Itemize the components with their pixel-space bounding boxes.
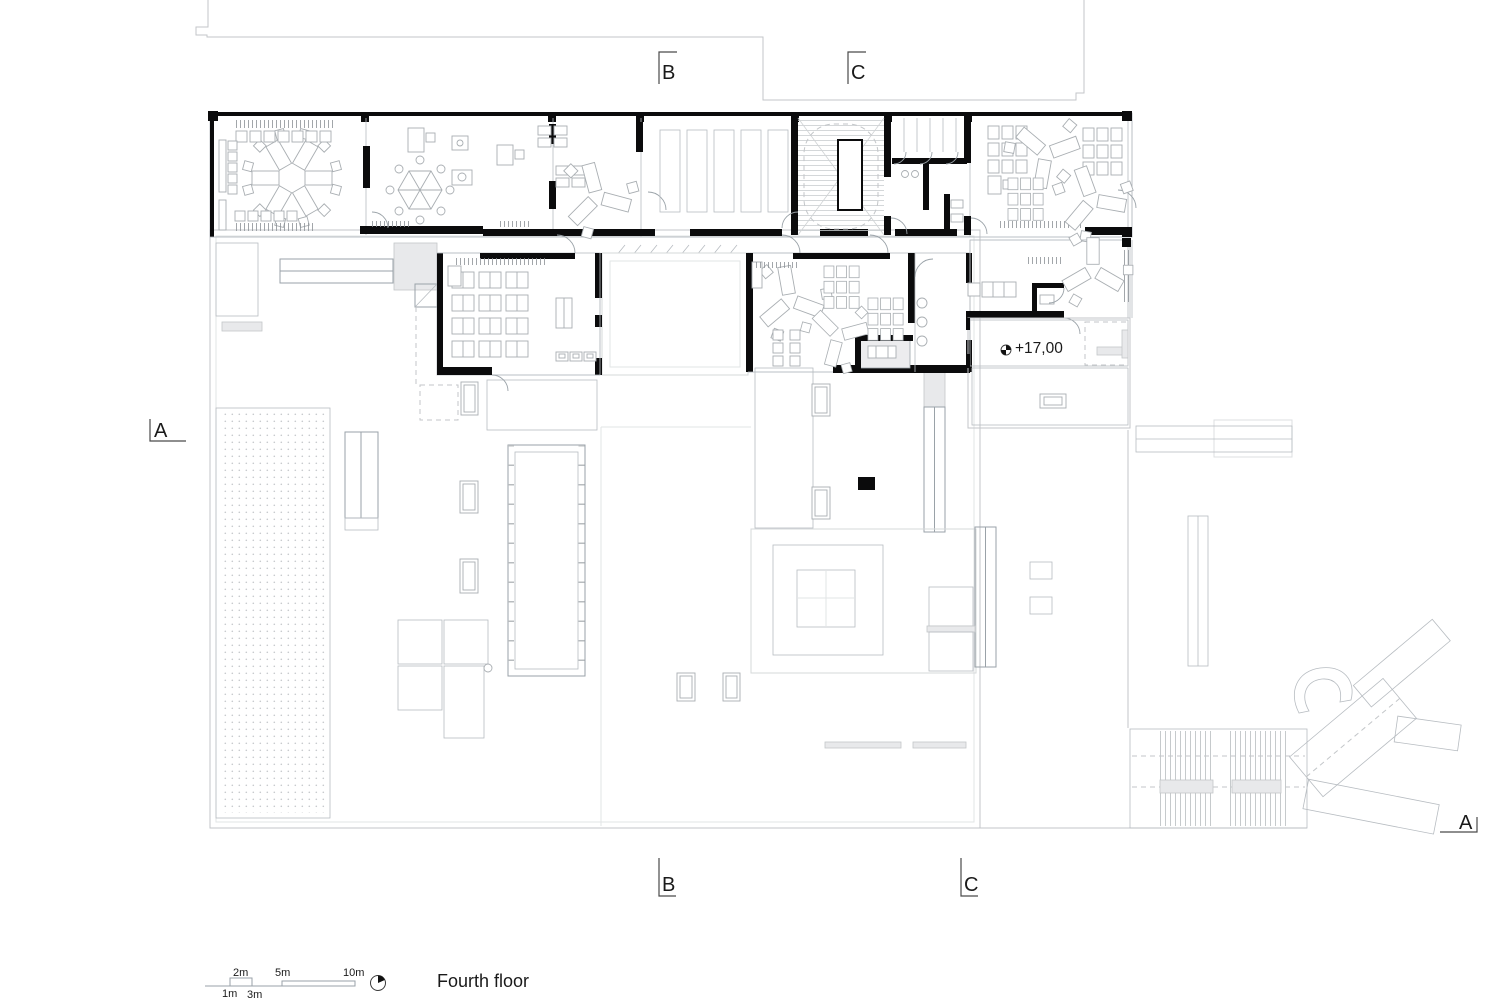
section-marker-b-top: B — [659, 52, 677, 84]
section-marker-c-bottom: C — [961, 858, 978, 896]
site-boundary — [196, 0, 1307, 828]
external-stair-east — [1136, 420, 1292, 666]
wing-wc-zone — [892, 118, 967, 230]
wing-stair-core — [798, 118, 884, 235]
roof-terrace-left — [216, 243, 597, 818]
elevation-label: +17,00 — [1015, 340, 1063, 357]
furniture-desk-grid — [868, 298, 903, 340]
room-library-stacks — [660, 130, 788, 212]
room-meeting-west — [219, 120, 341, 231]
section-marker-c-top: C — [848, 52, 866, 84]
svg-text:A: A — [1459, 812, 1473, 834]
courtyard-light-well — [602, 253, 748, 375]
block-classroom-west — [437, 235, 602, 391]
furniture-desk-grid — [1083, 128, 1122, 175]
floor-plan-sheet: +17,00 B C B C A A — [0, 0, 1498, 1000]
courtyard-stair-a — [924, 369, 945, 532]
furniture-desk-grid — [1008, 178, 1043, 220]
scale-label-3m: 3m — [247, 989, 262, 1000]
scale-bar: 1m 2m 3m 5m 10m — [205, 967, 386, 1000]
wing-north — [208, 110, 1136, 248]
north-arrow-icon — [371, 976, 386, 991]
floor-plan-drawing: +17,00 B C B C A A — [0, 0, 1498, 1000]
room-seminar-hex — [386, 128, 472, 224]
roof-terrace-plus17: +17,00 — [966, 318, 1130, 428]
walkway-arm-lower — [1303, 779, 1439, 834]
walkway-hook — [1294, 668, 1352, 713]
section-marker-a-left: A — [150, 419, 186, 442]
section-marker-a-right: A — [1440, 812, 1477, 834]
block-classroom-center — [739, 235, 972, 382]
roof-skylight-strip — [221, 413, 325, 813]
classroom-monitors — [556, 352, 596, 361]
svg-text:C: C — [851, 62, 865, 84]
roof-vent-black — [858, 477, 875, 490]
roof-walkways-southeast — [1130, 619, 1461, 834]
svg-text:C: C — [964, 874, 978, 896]
scale-label-2m: 2m — [233, 967, 248, 979]
scale-label-5m: 5m — [275, 967, 290, 979]
walkway-arm-upper — [1353, 619, 1450, 707]
sheet-title: Fourth floor — [437, 971, 529, 991]
scale-label-1m: 1m — [222, 988, 237, 1000]
svg-text:A: A — [154, 420, 168, 442]
furniture-hex-table — [386, 156, 454, 224]
roof-skylight-tall — [508, 445, 585, 676]
walkway-arm-right — [1394, 716, 1461, 751]
level-marker-icon — [1001, 345, 1011, 355]
corridor-columns — [917, 298, 927, 346]
scale-label-10m: 10m — [343, 967, 364, 979]
courtyard-stair-b — [975, 527, 996, 667]
furniture-desk-grid — [824, 266, 859, 308]
kitchen-island — [968, 282, 1016, 297]
section-marker-b-bottom: B — [659, 858, 676, 896]
classroom-desk-rows — [452, 272, 528, 357]
svg-text:B: B — [662, 62, 675, 84]
svg-text:B: B — [662, 874, 675, 896]
